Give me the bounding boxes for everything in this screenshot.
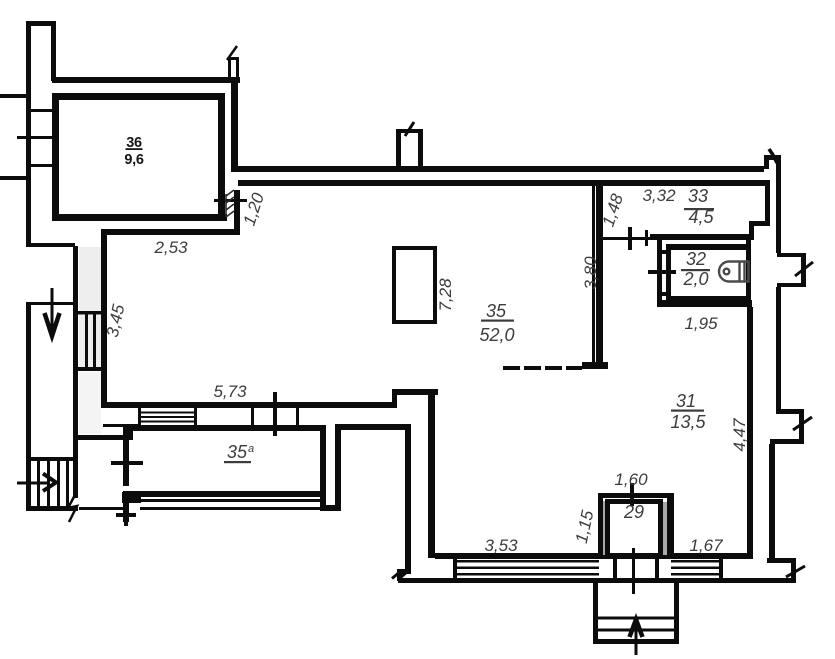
svg-text:2,0: 2,0 [682,269,708,289]
svg-text:9,6: 9,6 [124,152,143,168]
svg-text:1,60: 1,60 [614,470,648,489]
svg-text:5,73: 5,73 [213,382,247,401]
svg-text:2,53: 2,53 [153,238,188,257]
svg-text:29: 29 [623,502,644,522]
svg-text:4,47: 4,47 [730,418,749,452]
svg-text:32: 32 [686,249,706,269]
svg-text:3,32: 3,32 [642,186,676,205]
svg-text:1,95: 1,95 [684,314,718,333]
svg-text:13,5: 13,5 [670,412,706,432]
svg-text:31: 31 [676,391,696,411]
svg-text:4,5: 4,5 [688,207,714,227]
svg-text:35: 35 [486,301,507,321]
svg-text:33: 33 [688,186,708,206]
svg-text:3,53: 3,53 [484,536,518,555]
svg-text:52,0: 52,0 [479,325,514,345]
svg-text:a: a [248,443,254,455]
svg-text:3,80: 3,80 [581,256,600,290]
svg-text:7,28: 7,28 [436,278,455,312]
svg-text:35: 35 [227,442,248,462]
svg-text:1,67: 1,67 [689,536,723,555]
